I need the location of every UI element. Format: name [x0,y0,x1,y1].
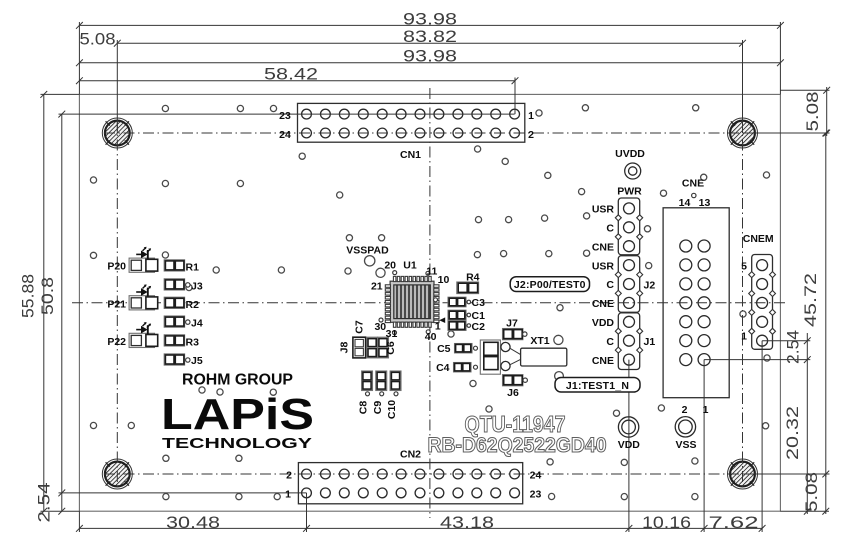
svg-text:J8: J8 [339,342,351,354]
svg-text:USR: USR [592,260,615,272]
svg-text:11: 11 [426,266,437,278]
svg-text:C: C [606,223,614,235]
svg-text:50.8: 50.8 [38,277,57,315]
svg-text:J4: J4 [191,317,203,329]
svg-text:1: 1 [285,489,291,501]
svg-text:2: 2 [286,470,292,482]
svg-text:20.32: 20.32 [783,406,802,460]
svg-text:C2: C2 [472,321,486,333]
svg-text:2.54: 2.54 [35,483,54,523]
svg-text:43.18: 43.18 [440,513,494,532]
svg-text:USR: USR [592,204,615,216]
svg-text:CNE: CNE [592,298,614,310]
svg-text:RB-D62Q2522GD40: RB-D62Q2522GD40 [428,434,607,457]
svg-text:CN1: CN1 [400,149,421,161]
svg-text:J2:P00/TEST0: J2:P00/TEST0 [514,279,586,291]
svg-text:30.48: 30.48 [166,513,220,532]
svg-text:45.72: 45.72 [801,273,820,327]
svg-text:1: 1 [435,321,441,333]
svg-text:J3: J3 [191,281,203,293]
svg-text:C: C [606,279,614,291]
svg-text:58.42: 58.42 [264,65,318,84]
svg-text:J1: J1 [644,336,656,348]
svg-text:XT1: XT1 [530,335,549,347]
svg-text:30: 30 [374,321,386,333]
svg-text:20: 20 [384,260,396,272]
svg-text:C9: C9 [372,401,384,415]
svg-text:40: 40 [425,331,437,343]
svg-text:C3: C3 [472,297,486,309]
svg-text:13: 13 [699,197,711,209]
svg-text:P22: P22 [107,336,126,348]
svg-text:J6: J6 [507,387,519,399]
svg-text:93.98: 93.98 [403,9,457,28]
svg-text:5.08: 5.08 [802,472,821,512]
svg-text:55.88: 55.88 [19,274,38,318]
svg-text:C8: C8 [358,401,370,415]
svg-text:24: 24 [279,129,291,141]
svg-text:C: C [606,336,614,348]
svg-text:CNE: CNE [682,178,704,190]
svg-text:10: 10 [438,274,450,286]
svg-text:5.08: 5.08 [803,92,822,132]
svg-text:CNE: CNE [592,355,614,367]
svg-text:U1: U1 [403,260,417,272]
svg-text:R4: R4 [466,272,480,284]
svg-text:93.98: 93.98 [403,47,457,66]
svg-text:UVDD: UVDD [615,148,645,160]
svg-text:J7: J7 [506,318,518,330]
svg-text:2.54: 2.54 [784,330,803,364]
svg-text:5.08: 5.08 [80,30,116,49]
svg-text:J2: J2 [644,279,656,291]
svg-text:R3: R3 [186,337,200,349]
svg-text:J1:TEST1_N: J1:TEST1_N [566,380,629,392]
svg-text:CNEM: CNEM [743,233,774,245]
svg-text:ROHM GROUP: ROHM GROUP [182,372,293,389]
svg-text:7.62: 7.62 [709,513,759,532]
svg-text:P21: P21 [107,298,126,310]
svg-text:CNE: CNE [592,241,614,253]
svg-text:LAPiS: LAPiS [161,390,314,439]
svg-text:5: 5 [741,260,747,272]
svg-text:C7: C7 [353,320,365,334]
svg-text:21: 21 [371,281,383,293]
svg-text:C5: C5 [437,343,451,355]
svg-text:VDD: VDD [592,317,615,329]
svg-text:P20: P20 [107,261,126,273]
svg-text:TECHNOLOGY: TECHNOLOGY [162,435,312,452]
svg-text:R1: R1 [186,261,200,273]
svg-text:C4: C4 [436,362,450,374]
svg-text:CN2: CN2 [400,449,421,461]
svg-text:24: 24 [530,470,542,482]
svg-text:J5: J5 [191,355,203,367]
svg-text:23: 23 [530,489,542,501]
svg-text:83.82: 83.82 [403,27,457,46]
svg-text:VDD: VDD [618,439,641,451]
svg-text:1: 1 [703,404,709,416]
svg-text:PWR: PWR [617,185,642,197]
svg-text:VSS: VSS [675,439,696,451]
svg-text:2: 2 [528,129,534,141]
svg-text:1: 1 [741,331,747,343]
svg-text:2: 2 [682,404,688,416]
svg-text:10.16: 10.16 [642,513,691,532]
svg-text:14: 14 [679,197,691,209]
svg-text:VSSPAD: VSSPAD [346,245,389,257]
svg-text:C10: C10 [386,400,398,419]
svg-text:1: 1 [528,110,534,122]
svg-text:31: 31 [386,328,398,340]
svg-text:23: 23 [279,110,291,122]
svg-text:R2: R2 [186,299,200,311]
svg-text:C6: C6 [385,341,397,355]
